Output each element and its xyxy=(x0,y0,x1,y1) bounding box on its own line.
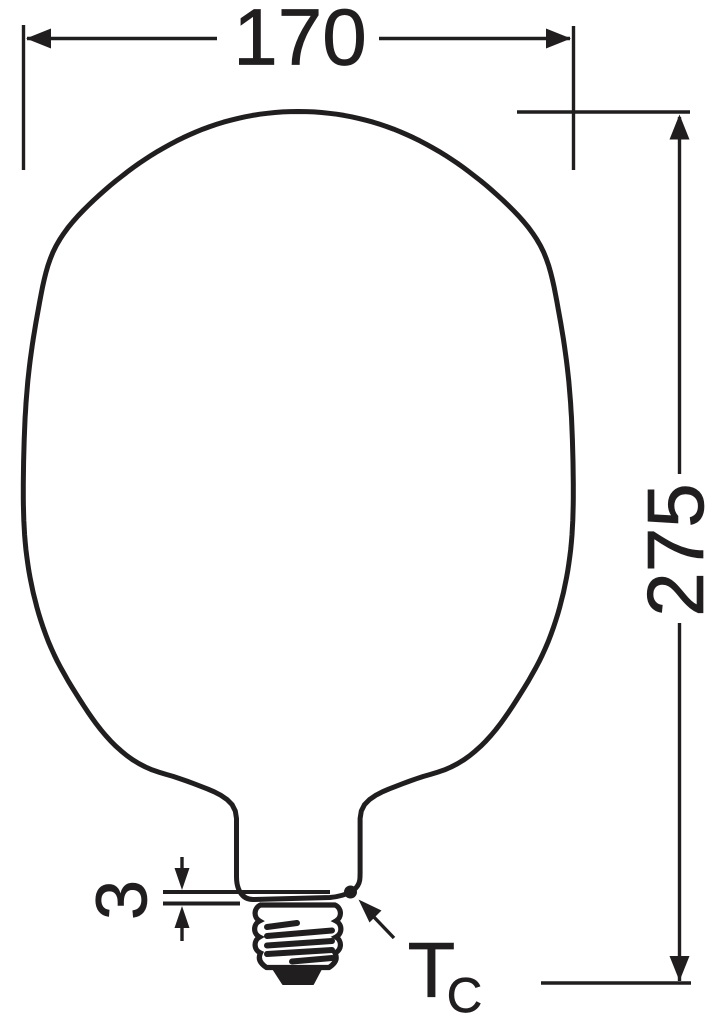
svg-text:3: 3 xyxy=(83,880,163,920)
svg-text:275: 275 xyxy=(631,483,720,616)
svg-text:C: C xyxy=(447,969,482,1023)
svg-text:170: 170 xyxy=(233,0,366,82)
